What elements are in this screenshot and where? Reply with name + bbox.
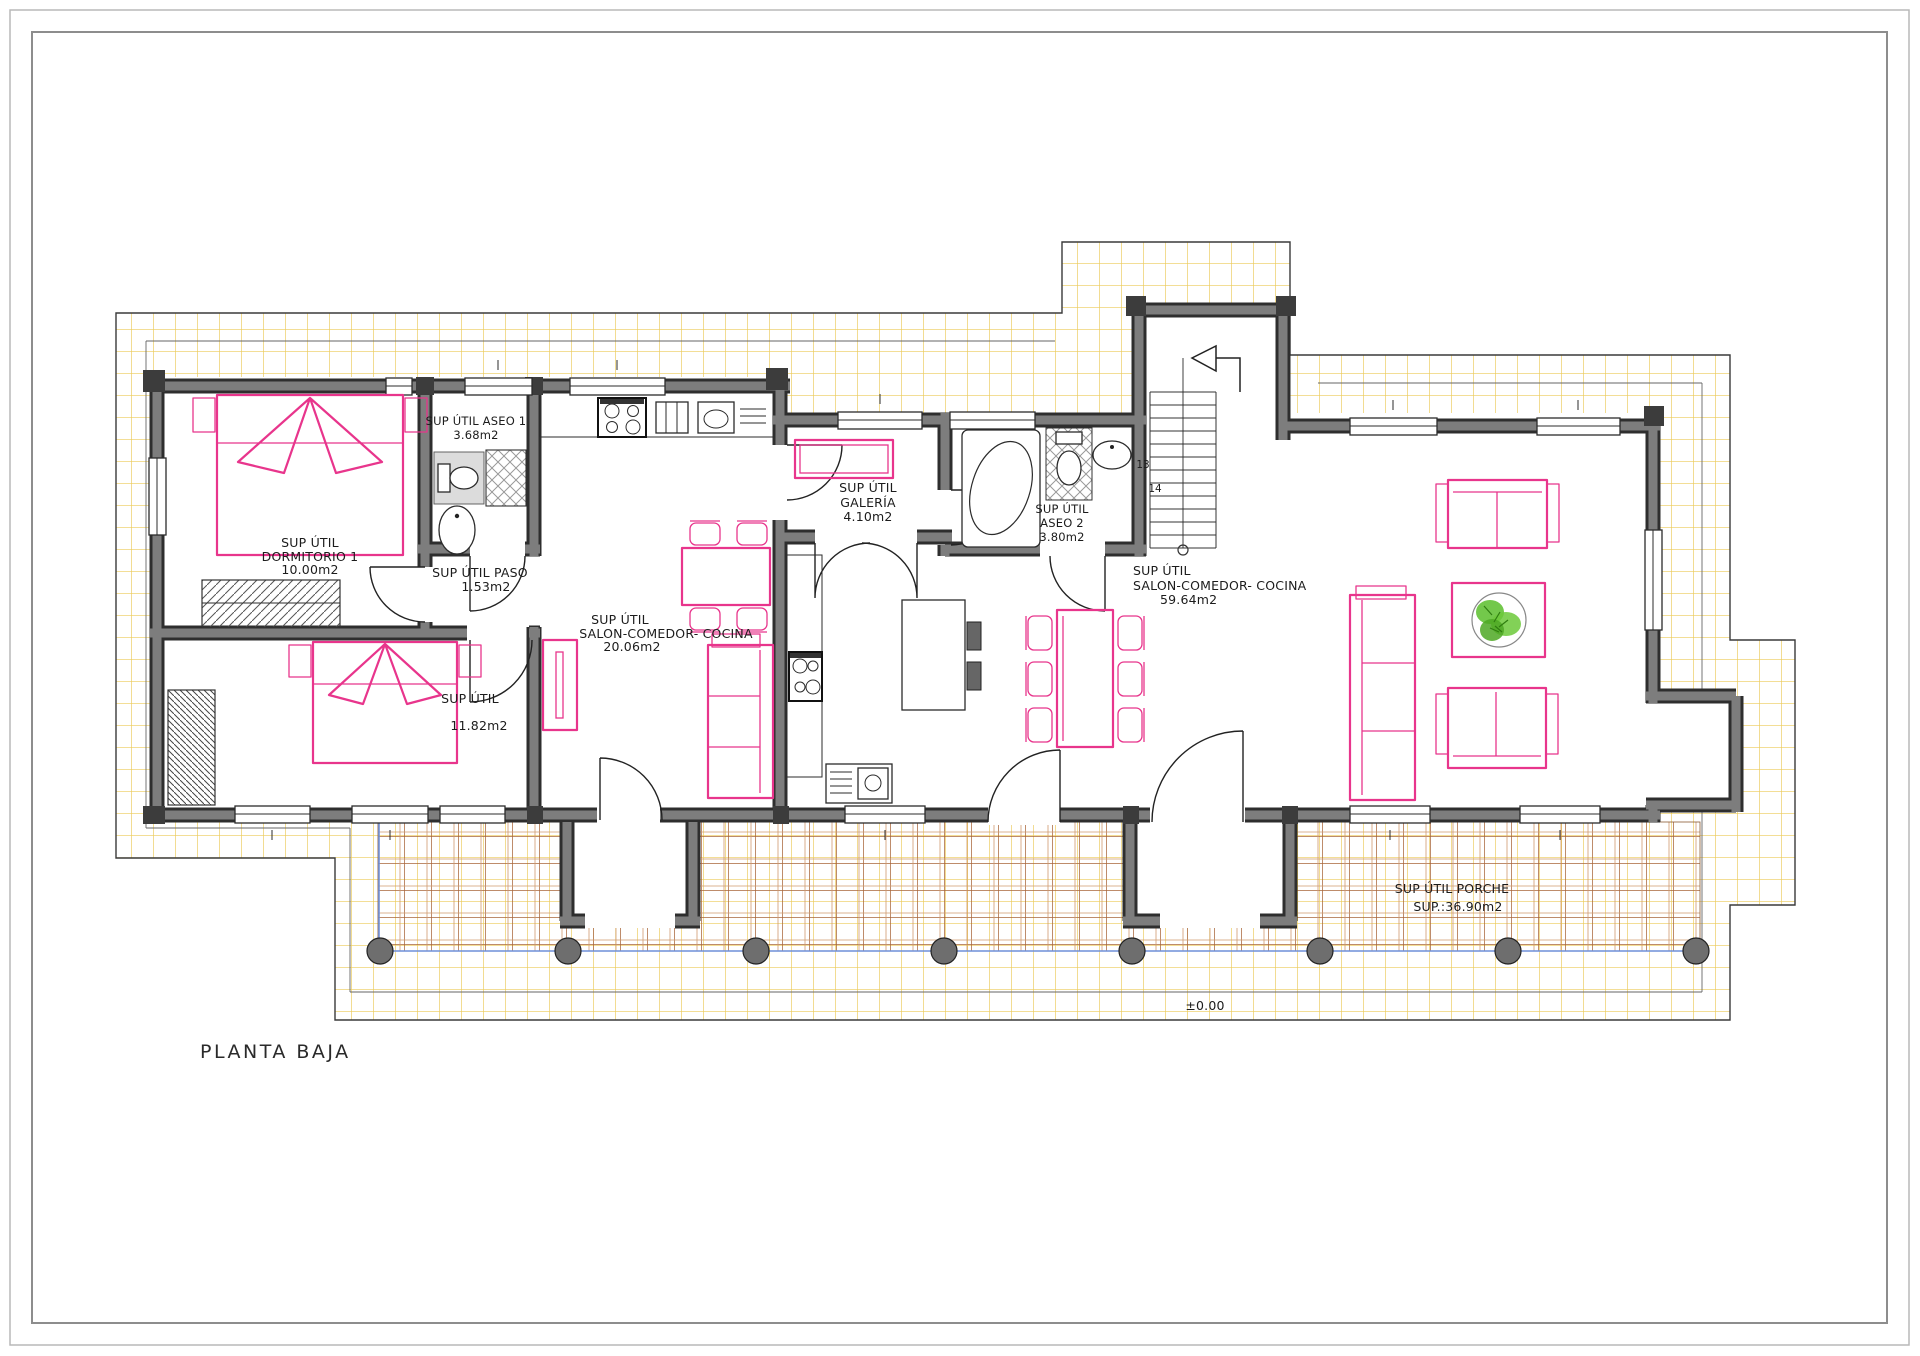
stove-icon [789, 652, 822, 701]
svg-text:SUP ÚTIL: SUP ÚTIL [1035, 501, 1089, 516]
toilet-tank [438, 464, 450, 492]
wardrobe-dormitorio2 [168, 690, 215, 805]
stair-step-number: 13 [1136, 459, 1149, 471]
svg-text:SUP ÚTIL ASEO 1: SUP ÚTIL ASEO 1 [426, 413, 527, 428]
stool [967, 662, 981, 690]
washbasin-icon [439, 506, 475, 554]
porch-column [1119, 938, 1145, 964]
svg-text:SUP.:36.90m2: SUP.:36.90m2 [1413, 899, 1502, 914]
svg-text:20.06m2: 20.06m2 [603, 639, 660, 654]
porch-column [1495, 938, 1521, 964]
shower-tray-icon [486, 450, 526, 506]
svg-text:SUP ÚTIL: SUP ÚTIL [839, 480, 897, 495]
svg-text:59.64m2: 59.64m2 [1160, 592, 1217, 607]
svg-text:11.82m2: 11.82m2 [450, 718, 507, 733]
svg-text:3.80m2: 3.80m2 [1039, 530, 1084, 544]
kitchen-sink-icon [826, 764, 892, 803]
stove-icon [598, 398, 646, 437]
svg-text:SUP ÚTIL: SUP ÚTIL [1133, 563, 1191, 578]
porch-column [1683, 938, 1709, 964]
stool [967, 622, 981, 650]
svg-text:ASEO 2: ASEO 2 [1040, 516, 1084, 530]
porch-column [931, 938, 957, 964]
floor-plan-canvas: 13 14 [0, 0, 1920, 1356]
svg-text:GALERÍA: GALERÍA [840, 495, 896, 510]
bathtub-icon [962, 430, 1040, 547]
svg-text:SUP ÚTIL: SUP ÚTIL [591, 612, 649, 627]
stair-step-number: 14 [1148, 483, 1162, 495]
svg-text:SUP ÚTIL: SUP ÚTIL [281, 535, 339, 550]
left-vestibule-floor [560, 822, 700, 928]
svg-text:SUP ÚTIL PORCHE: SUP ÚTIL PORCHE [1395, 881, 1509, 896]
svg-text:3.68m2: 3.68m2 [453, 428, 498, 442]
page-title: PLANTA BAJA [200, 1041, 351, 1063]
porch-column [367, 938, 393, 964]
svg-text:SUP ÚTIL: SUP ÚTIL [441, 691, 499, 706]
closet-dormitorio1 [202, 580, 340, 627]
entry-vestibule-floor [1123, 822, 1297, 928]
label-galeria: SUP ÚTIL GALERÍA 4.10m2 [839, 480, 897, 524]
level-mark: ±0.00 [1185, 998, 1224, 1013]
drawing-sheet: 13 14 [0, 0, 1920, 1356]
label-aseo2: SUP ÚTIL ASEO 2 3.80m2 [1035, 501, 1089, 544]
porch-column [555, 938, 581, 964]
toilet-bowl-icon [1057, 451, 1081, 485]
toilet-bowl-icon [450, 467, 478, 489]
svg-text:SALON-COMEDOR- COCINA: SALON-COMEDOR- COCINA [1133, 578, 1307, 593]
porch-column [743, 938, 769, 964]
svg-text:10.00m2: 10.00m2 [281, 562, 338, 577]
toilet-tank [1056, 432, 1082, 444]
svg-text:SUP ÚTIL PASO: SUP ÚTIL PASO [432, 565, 528, 580]
svg-text:4.10m2: 4.10m2 [843, 509, 892, 524]
svg-text:1.53m2: 1.53m2 [461, 579, 510, 594]
porch-column [1307, 938, 1333, 964]
kitchen-cabinet [656, 402, 688, 433]
